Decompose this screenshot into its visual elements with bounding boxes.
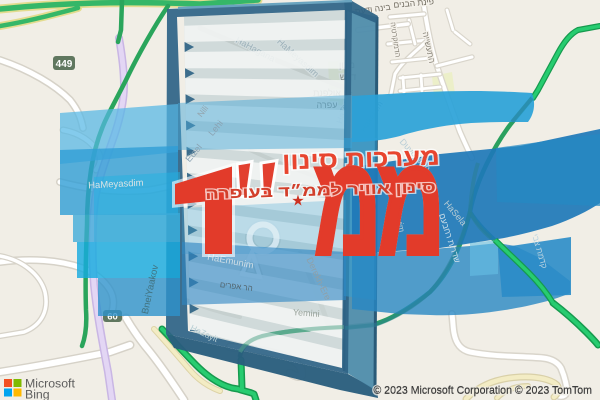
svg-text:Yemini: Yemini [293,307,320,319]
svg-text:Bing: Bing [25,388,50,400]
svg-text:449: 449 [56,59,73,70]
svg-text:★: ★ [291,193,304,210]
svg-text:© 2023 Microsoft Corporation ©: © 2023 Microsoft Corporation © 2023 TomT… [373,385,592,397]
svg-text:ממ: ממ [314,127,441,284]
